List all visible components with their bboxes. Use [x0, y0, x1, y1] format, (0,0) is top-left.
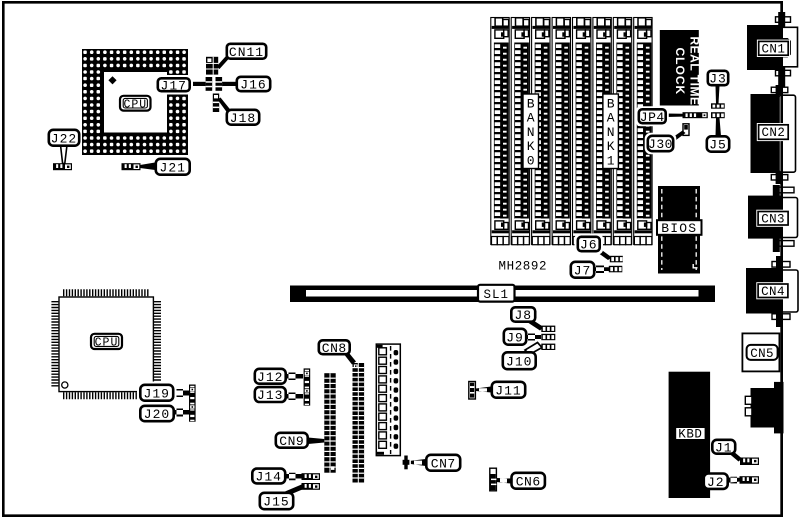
svg-text:J17: J17 [161, 78, 187, 93]
svg-text:CN9: CN9 [279, 434, 304, 449]
svg-text:J5: J5 [709, 138, 727, 153]
svg-text:J16: J16 [240, 78, 266, 93]
svg-text:CN7: CN7 [431, 456, 456, 471]
svg-text:1: 1 [607, 153, 615, 168]
svg-text:0: 0 [527, 153, 535, 168]
svg-text:SL1: SL1 [483, 288, 509, 302]
svg-text:CN2: CN2 [762, 126, 786, 140]
svg-text:J1: J1 [715, 440, 733, 455]
svg-text:CN1: CN1 [762, 42, 786, 56]
svg-text:CLOCK: CLOCK [673, 48, 687, 96]
svg-text:A: A [607, 111, 615, 126]
svg-text:N: N [527, 125, 535, 140]
svg-text:J14: J14 [256, 470, 282, 485]
svg-text:CN3: CN3 [761, 212, 785, 226]
svg-text:J22: J22 [51, 131, 77, 146]
svg-text:N: N [607, 125, 615, 140]
svg-text:J30: J30 [648, 137, 673, 152]
svg-text:J13: J13 [257, 388, 283, 403]
svg-text:CN8: CN8 [322, 341, 347, 356]
svg-text:J21: J21 [160, 160, 186, 175]
svg-text:A: A [527, 111, 535, 126]
svg-text:J8: J8 [514, 308, 532, 323]
svg-text:J2: J2 [707, 475, 725, 490]
svg-text:B: B [527, 97, 535, 112]
svg-text:J11: J11 [495, 383, 521, 398]
svg-text:J19: J19 [144, 386, 170, 401]
svg-text:J18: J18 [230, 111, 256, 126]
svg-text:BIOS: BIOS [661, 221, 697, 236]
svg-text:MH2892: MH2892 [499, 260, 548, 274]
svg-text:CN11: CN11 [229, 45, 264, 60]
svg-text:CPU: CPU [123, 98, 147, 111]
svg-text:CN6: CN6 [516, 474, 541, 489]
svg-text:J7: J7 [574, 263, 592, 278]
svg-text:REAL TIME: REAL TIME [688, 37, 702, 106]
svg-text:CN5: CN5 [750, 347, 774, 361]
svg-text:KBD: KBD [678, 427, 702, 441]
svg-text:J10: J10 [506, 354, 532, 369]
svg-text:JP4: JP4 [640, 110, 665, 125]
svg-text:J3: J3 [709, 72, 727, 87]
svg-text:K: K [607, 139, 615, 154]
svg-text:J6: J6 [580, 238, 598, 253]
svg-text:B: B [607, 97, 615, 112]
svg-text:J20: J20 [144, 407, 170, 422]
svg-text:J9: J9 [506, 330, 524, 345]
svg-text:K: K [527, 139, 535, 154]
svg-text:CN4: CN4 [761, 285, 785, 299]
svg-text:J12: J12 [257, 370, 283, 385]
svg-text:J15: J15 [263, 495, 289, 510]
svg-text:CPU: CPU [95, 337, 119, 350]
